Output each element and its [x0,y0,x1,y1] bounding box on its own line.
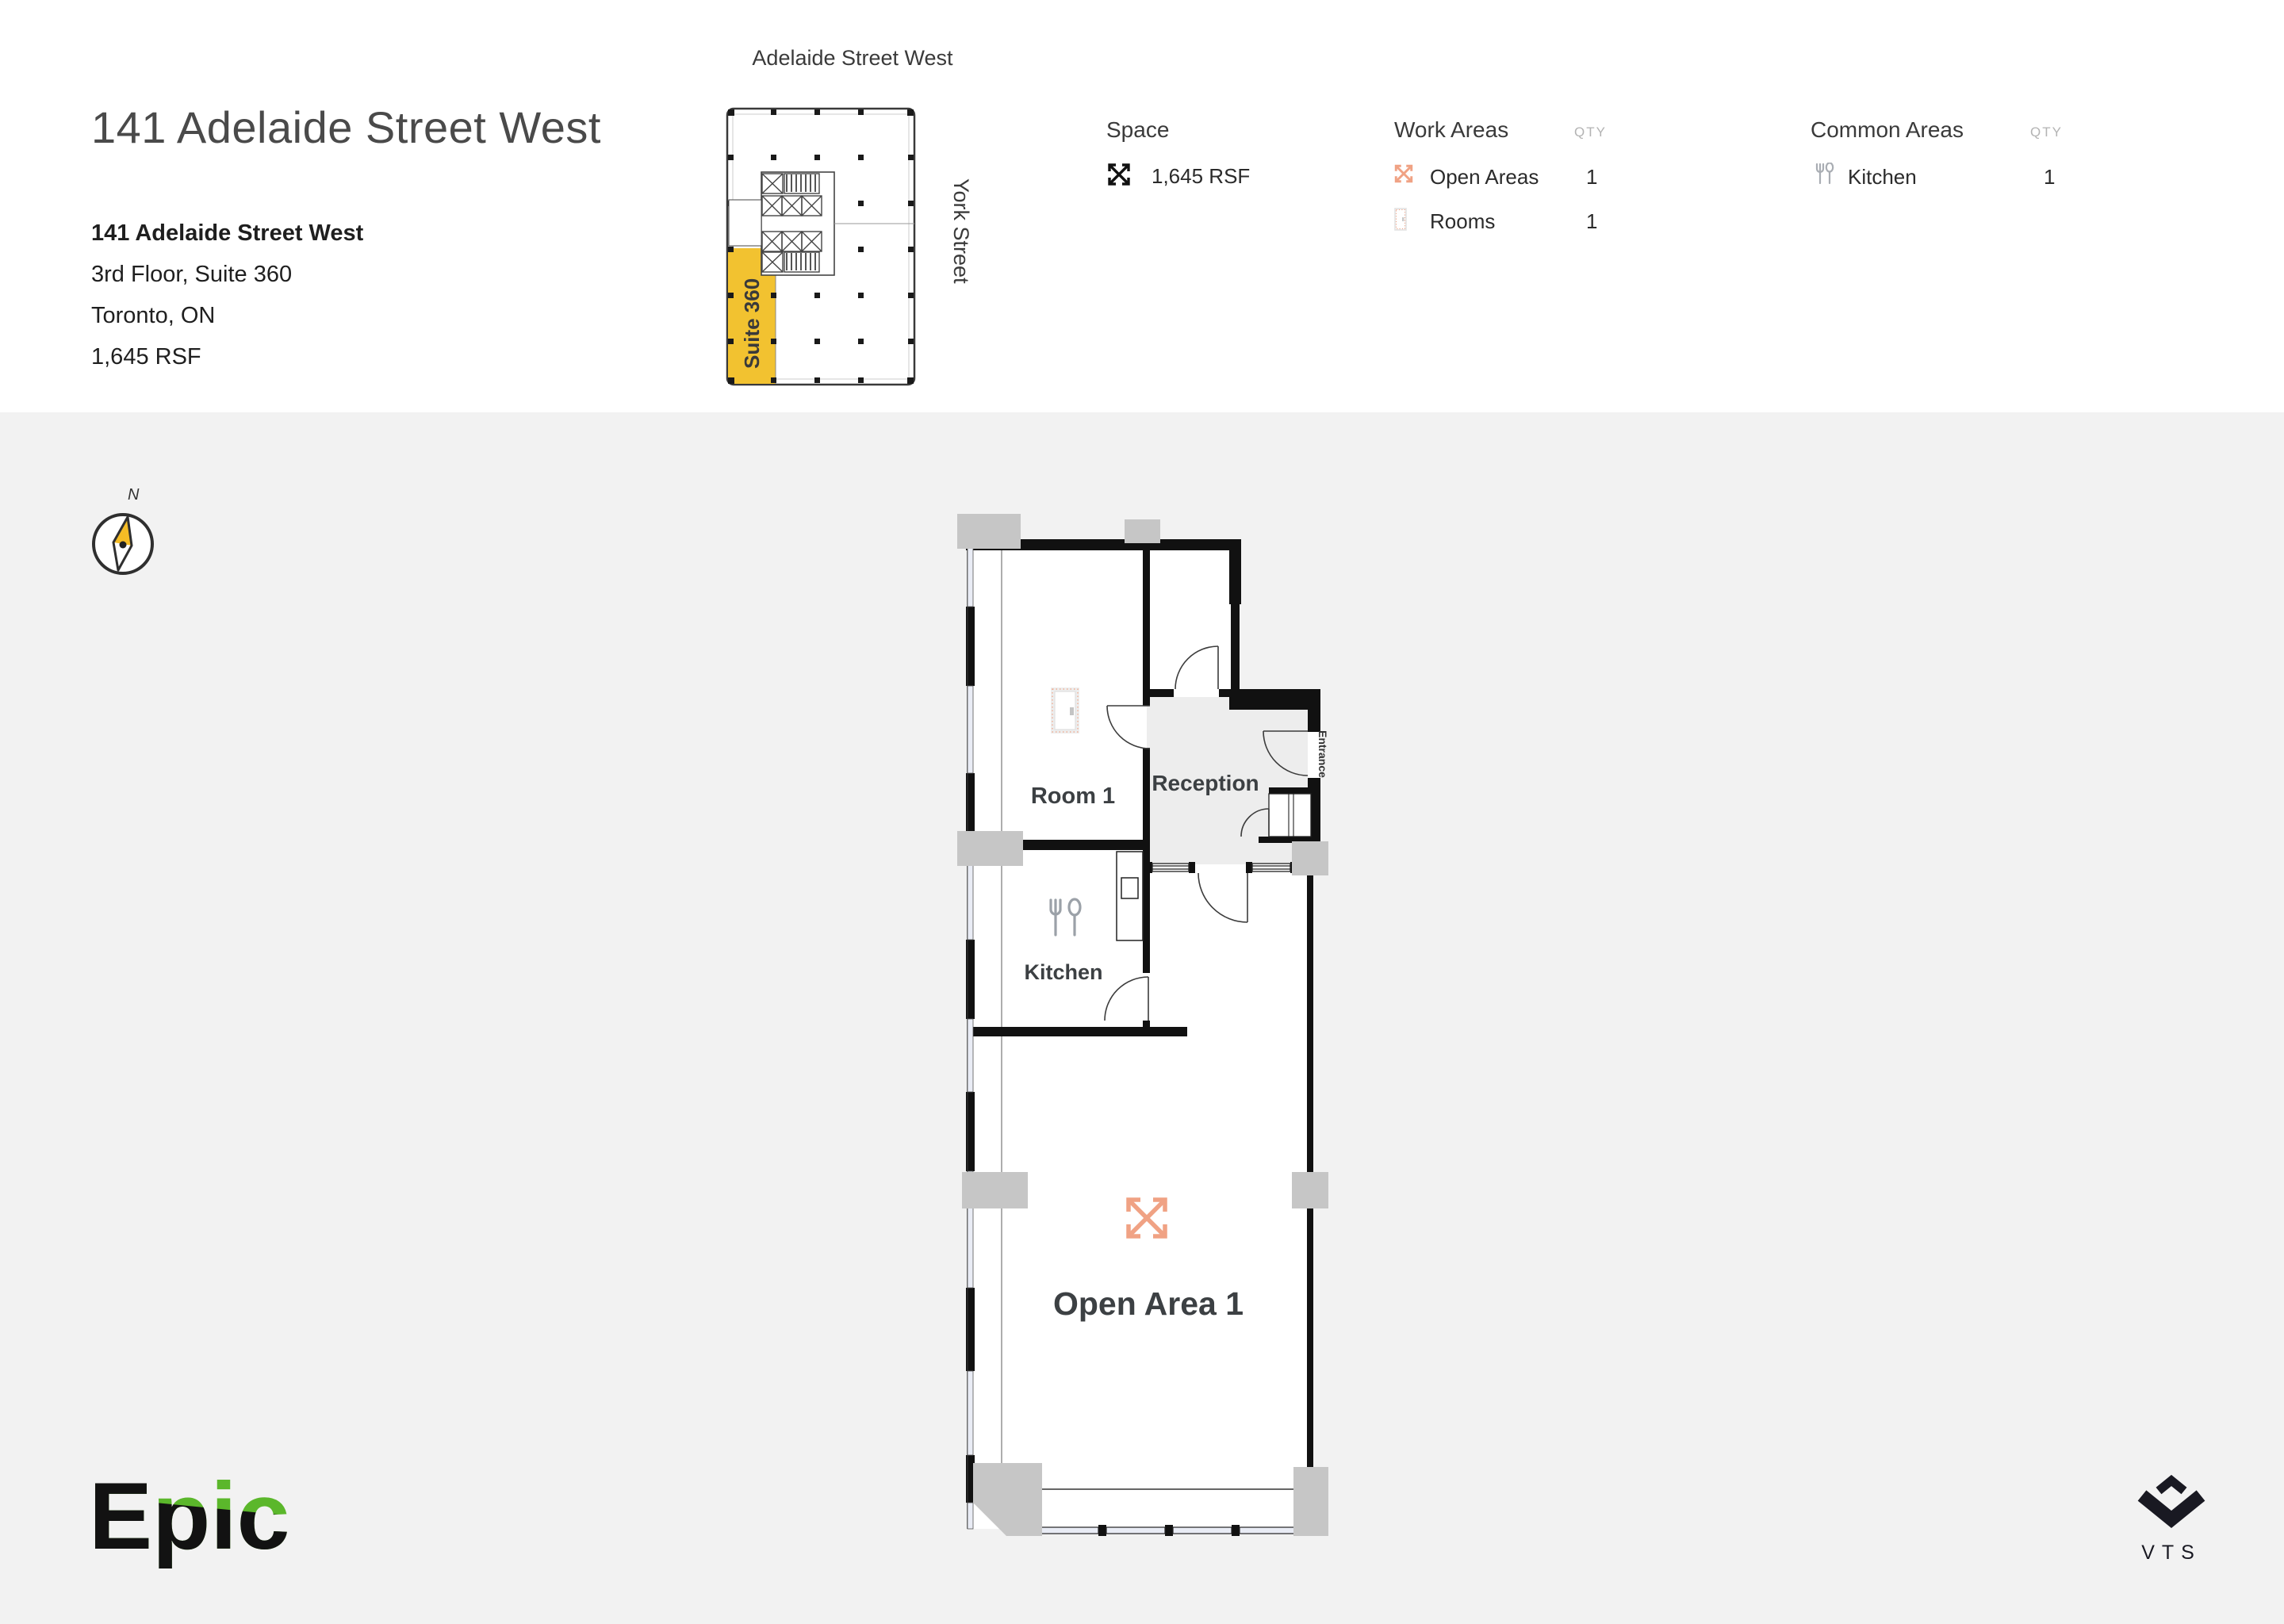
page-title: 141 Adelaide Street West [91,101,601,153]
building-size: 1,645 RSF [91,336,363,377]
kitchen-icon [1814,163,1834,185]
street-label-right: York Street [948,178,973,321]
legend-common-areas-heading: Common Areas [1811,117,1964,143]
minimap-suite-label: Suite 360 [740,278,764,369]
legend-row-qty: 1 [1586,165,1597,190]
compass-north-label: N [128,486,140,504]
room-door-marker [1051,688,1079,733]
space-rsf-value: 1,645 RSF [1152,164,1250,189]
legend-work-areas-qty-heading: QTY [1574,124,1607,140]
legend-row-qty: 1 [1586,209,1597,234]
legend-row-label: Open Areas [1430,165,1539,190]
legend-common-areas-qty-heading: QTY [2030,124,2063,140]
legend-row-label: Kitchen [1848,165,1917,190]
street-label-top: Adelaide Street West [714,46,991,71]
space-rsf-icon [1106,162,1132,187]
building-city: Toronto, ON [91,295,363,336]
floor-plan: Room 1 Reception Kitchen Open Area 1 Ent… [956,511,1328,1542]
vts-logo-text: VTS [2141,1542,2202,1564]
legend-row-qty: 1 [2044,165,2055,190]
plan-canvas: N [0,412,2284,1624]
room1-label: Room 1 [1031,783,1115,809]
left-windows [968,545,973,1529]
building-address-block: 141 Adelaide Street West 3rd Floor, Suit… [91,213,363,377]
kitchen-counter [1117,852,1143,940]
legend-work-areas-heading: Work Areas [1394,117,1508,143]
room-door-icon [1394,208,1407,231]
open-area-label: Open Area 1 [1053,1285,1244,1322]
open-area-icon [1393,163,1414,184]
building-name: 141 Adelaide Street West [91,213,363,254]
floor-locator-map: Suite 360 [726,107,916,386]
epic-logo: Epic Epic [89,1463,319,1574]
entrance-label: Entrance [1316,730,1328,778]
building-floor: 3rd Floor, Suite 360 [91,254,363,295]
reception-label: Reception [1152,771,1259,795]
kitchen-label: Kitchen [1024,960,1102,984]
flyer-page: 141 Adelaide Street West 141 Adelaide St… [0,0,2284,1624]
legend-space-heading: Space [1106,117,1169,143]
closet [1269,794,1311,837]
legend-row-label: Rooms [1430,209,1495,234]
compass-icon: N [75,476,178,579]
vts-logo: VTS [2132,1475,2211,1566]
header: 141 Adelaide Street West 141 Adelaide St… [0,0,2284,412]
